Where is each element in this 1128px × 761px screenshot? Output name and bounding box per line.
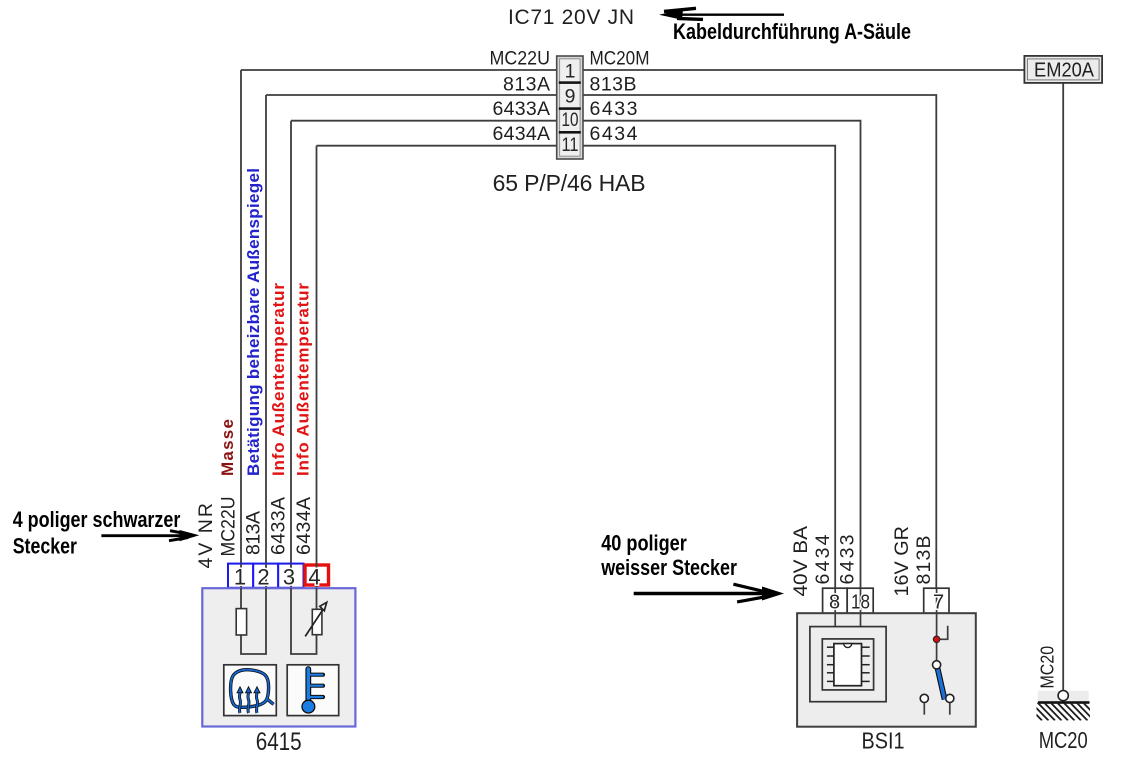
svg-text:813A: 813A — [503, 73, 550, 95]
svg-text:11: 11 — [562, 134, 579, 156]
svg-text:6434: 6434 — [590, 123, 638, 145]
svg-text:40 poliger: 40 poliger — [601, 531, 687, 556]
svg-text:813B: 813B — [590, 73, 637, 95]
svg-text:8: 8 — [829, 592, 840, 614]
svg-text:MC22U: MC22U — [490, 48, 551, 70]
svg-text:6434A: 6434A — [493, 123, 551, 145]
svg-text:6433A: 6433A — [268, 497, 290, 555]
svg-text:4: 4 — [308, 565, 320, 590]
svg-text:EM20A: EM20A — [1034, 60, 1095, 82]
svg-text:Kabeldurchführung A-Säule: Kabeldurchführung A-Säule — [673, 19, 911, 44]
svg-text:10: 10 — [562, 109, 579, 131]
svg-text:4 poliger schwarzer: 4 poliger schwarzer — [13, 507, 181, 532]
svg-text:BSI1: BSI1 — [862, 728, 905, 754]
svg-text:6415: 6415 — [256, 728, 302, 756]
svg-text:MC20M: MC20M — [590, 48, 650, 70]
svg-text:1: 1 — [565, 61, 576, 83]
svg-text:Masse: Masse — [218, 419, 237, 476]
svg-text:40V BA: 40V BA — [790, 526, 812, 597]
svg-text:813B: 813B — [913, 536, 935, 585]
svg-text:6433: 6433 — [590, 98, 638, 120]
svg-text:MC20: MC20 — [1039, 727, 1088, 753]
svg-text:2: 2 — [257, 565, 269, 590]
svg-text:1: 1 — [234, 565, 246, 590]
svg-text:7: 7 — [933, 592, 944, 614]
svg-text:weisser Stecker: weisser Stecker — [600, 555, 737, 580]
svg-text:Stecker: Stecker — [13, 534, 78, 559]
svg-text:18: 18 — [851, 592, 870, 614]
svg-text:MC20: MC20 — [1037, 646, 1058, 689]
svg-text:IC71 20V JN: IC71 20V JN — [508, 6, 634, 29]
svg-text:4V NR: 4V NR — [195, 503, 217, 569]
svg-text:3: 3 — [283, 565, 295, 590]
svg-text:Info Außentemperatur: Info Außentemperatur — [294, 283, 313, 476]
svg-text:Info Außentemperatur: Info Außentemperatur — [269, 283, 288, 476]
svg-text:9: 9 — [565, 86, 576, 108]
svg-text:Betätigung beheizbare Außenspi: Betätigung beheizbare Außenspiegel — [244, 168, 263, 476]
svg-text:MC22U: MC22U — [218, 497, 240, 557]
svg-text:16V GR: 16V GR — [891, 526, 913, 597]
svg-text:813A: 813A — [243, 511, 265, 555]
svg-text:65 P/P/46 HAB: 65 P/P/46 HAB — [493, 170, 646, 196]
svg-text:6434A: 6434A — [293, 497, 315, 555]
svg-text:6433A: 6433A — [493, 98, 551, 120]
